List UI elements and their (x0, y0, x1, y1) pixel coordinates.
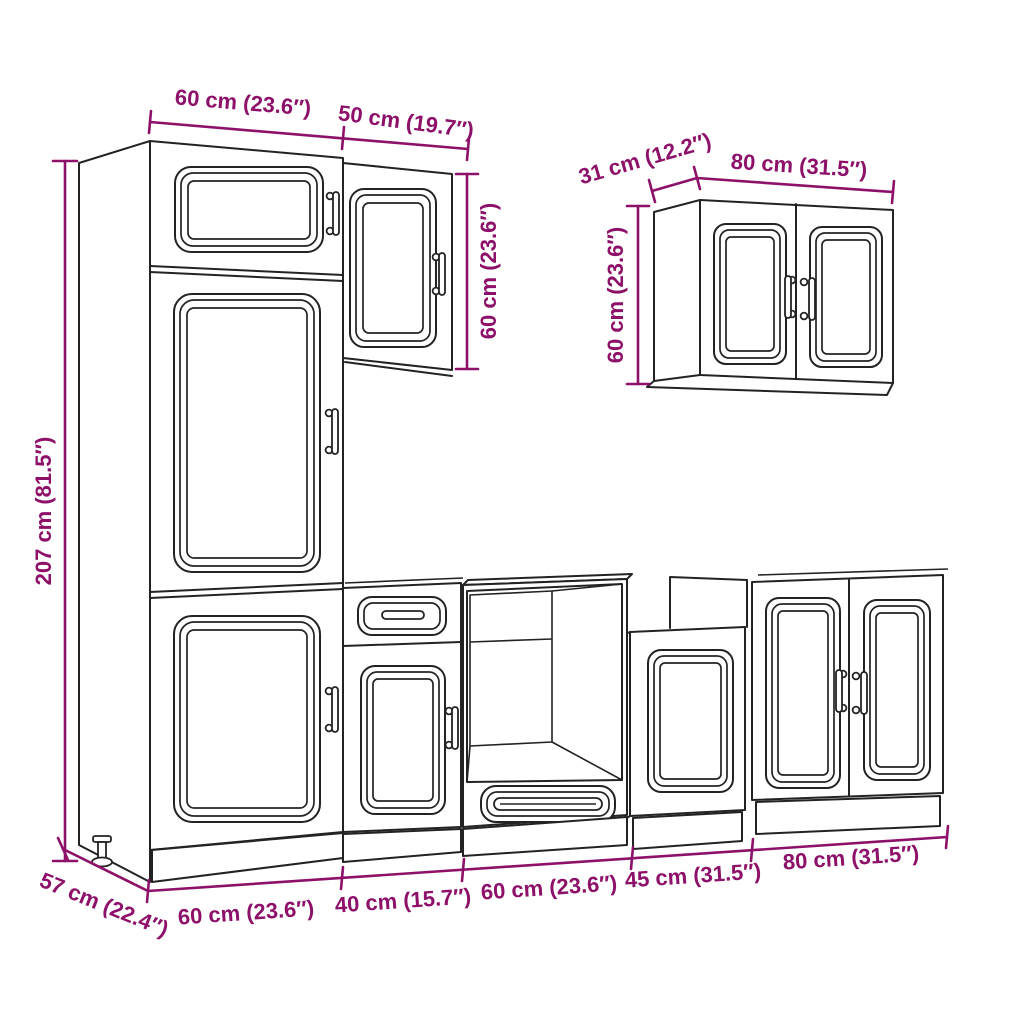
label-base-45: 45 cm (31.5″) (624, 858, 762, 892)
base-cabinet-45 (625, 577, 747, 849)
label-upper-height: 60 cm (23.6″) (476, 203, 501, 340)
dim-tall-height: 207 cm (81.5″) (31, 161, 77, 861)
label-wall-height: 60 cm (23.6″) (603, 227, 628, 364)
label-tall-width: 60 cm (23.6″) (174, 84, 312, 120)
label-upper-width: 50 cm (19.7″) (337, 100, 476, 143)
dim-upper-height: 60 cm (23.6″) (456, 174, 501, 369)
cabinet-dimension-diagram: 60 cm (23.6″) 50 cm (19.7″) 60 cm (23.6″… (0, 0, 1024, 1024)
tall-bottom-door (174, 616, 338, 822)
diagram-canvas: 60 cm (23.6″) 50 cm (19.7″) 60 cm (23.6″… (0, 0, 1024, 1024)
base-cabinet-80 (752, 569, 948, 834)
tall-cabinet (79, 141, 343, 882)
label-tall-height: 207 cm (81.5″) (31, 437, 56, 586)
dim-wall-depth: 31 cm (12.2″) (576, 128, 714, 202)
upper-cabinet-50 (343, 163, 452, 376)
oven-cabinet-bottom-panel (481, 786, 615, 822)
tall-top-door (175, 167, 339, 252)
tall-middle-door (174, 294, 338, 572)
drawer-front (358, 597, 446, 635)
dim-wall-width: 80 cm (31.5″) (697, 149, 894, 203)
label-base-60b: 60 cm (23.6″) (480, 870, 618, 904)
base-cabinet-60-oven (463, 574, 632, 856)
base-cabinet-40 (343, 578, 463, 862)
label-base-60a: 60 cm (23.6″) (177, 895, 315, 929)
label-base-40: 40 cm (15.7″) (334, 883, 472, 917)
wall-cabinet-80 (647, 200, 893, 395)
dim-wall-height: 60 cm (23.6″) (603, 206, 649, 384)
label-wall-width: 80 cm (31.5″) (730, 149, 868, 183)
